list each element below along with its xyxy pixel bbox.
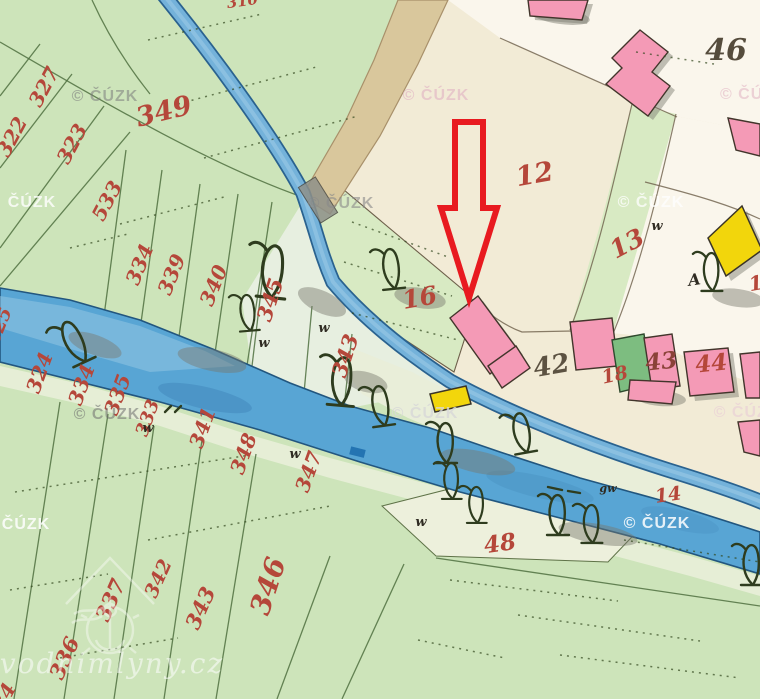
meadow-mark: gw [599, 482, 617, 495]
meadow-mark: w [415, 515, 427, 530]
parcel-number-label: 46 [705, 33, 747, 68]
parcel-number-label: 43 [644, 346, 679, 376]
parcel-number-label: 44 [694, 348, 729, 378]
parcel-number-label: 16 [400, 280, 439, 315]
watermark-text: ČÚZK [2, 514, 50, 533]
watermark-text: © ČÚZK [403, 85, 470, 104]
parcel-number-label: 48 [482, 528, 517, 559]
building-pink [628, 380, 676, 404]
map-viewport: 3223273235333493343393403253103243343353… [0, 0, 760, 699]
watermark-text: ČÚZK [8, 192, 56, 211]
watermark-text: © ČÚZK [72, 86, 139, 105]
watermark-text: © ČÚZK [392, 403, 459, 422]
meadow-mark: w [289, 447, 301, 462]
watermark-text: © ČÚZK [618, 192, 685, 211]
watermark-text: © ČÚZK [624, 513, 691, 532]
watermark-text: © ČÚZ [720, 84, 760, 103]
building-pink [570, 318, 618, 370]
meadow-mark: w [651, 219, 663, 234]
parcel-number-label: 42 [531, 348, 572, 384]
watermark-text: vodnimlyny.cz [0, 647, 224, 680]
meadow-mark: w [142, 421, 154, 436]
watermark-text: © ČÚZK [714, 402, 760, 421]
parcel-number-label: 14 [654, 482, 683, 507]
cadastral-map: 3223273235333493343393403253103243343353… [0, 0, 760, 699]
building-pink [528, 0, 588, 20]
parcel-number-label: 12 [513, 156, 555, 193]
meadow-mark: w [258, 336, 270, 351]
watermark-text: © ČÚZK [308, 193, 375, 212]
watermark-text: © ČÚZK [74, 404, 141, 423]
meadow-mark: w [318, 321, 330, 336]
